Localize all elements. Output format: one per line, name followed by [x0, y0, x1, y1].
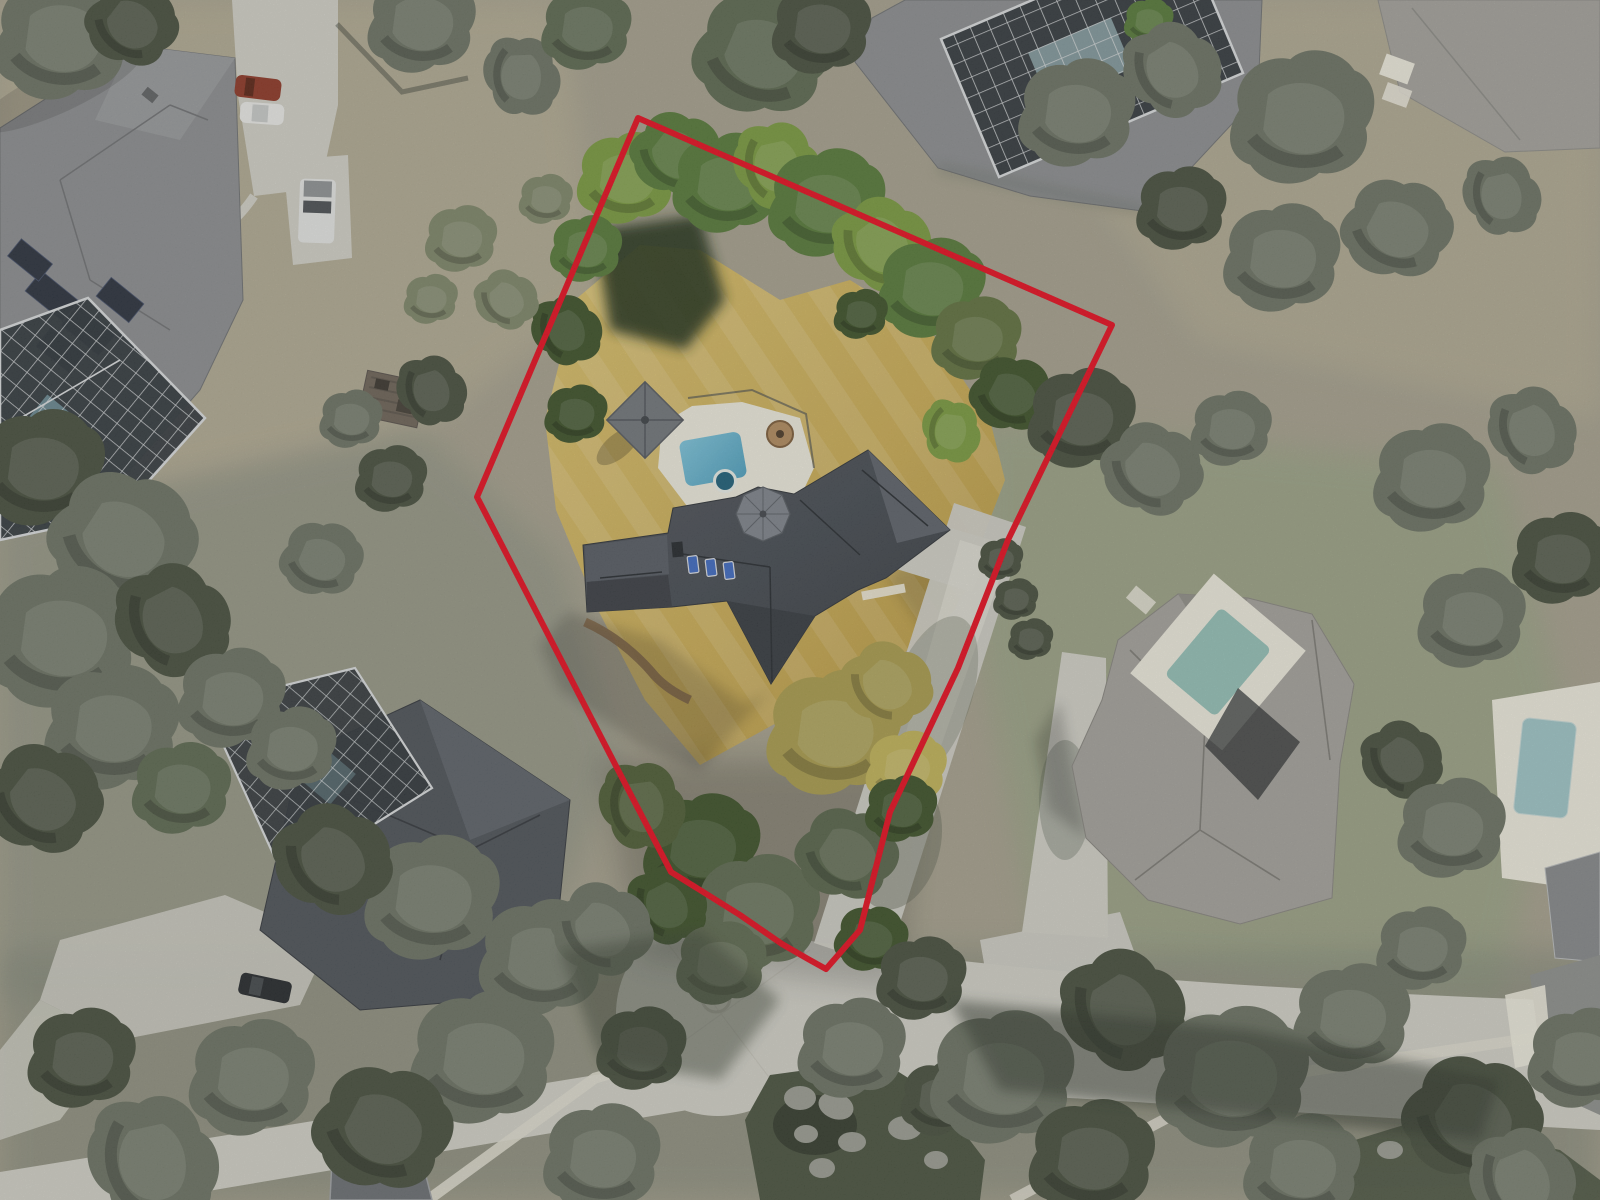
aerial-neighborhood-photo [0, 0, 1600, 1200]
aerial-photo-canvas [0, 0, 1600, 1200]
photo-grain-light [0, 0, 1600, 1200]
